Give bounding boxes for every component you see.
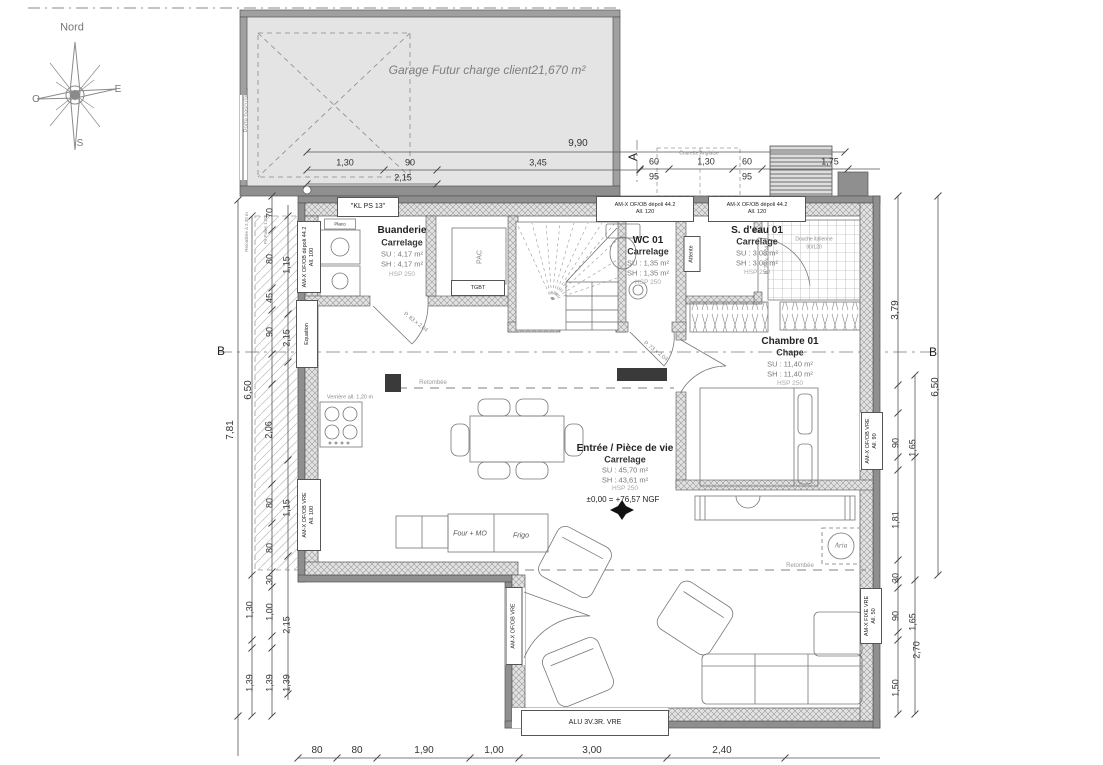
dim: 95	[742, 173, 752, 182]
room-buanderie-sh: SH : 4,17 m²	[381, 260, 423, 268]
room-wc-sh: SH : 1,35 m²	[627, 269, 669, 277]
dim: 1,50	[892, 679, 901, 697]
wall-tag-kl-ps13: "KL PS 13"	[337, 197, 399, 217]
dim: 90	[892, 438, 901, 448]
room-chambre-hsp: HSP 250	[777, 381, 803, 388]
dim: 1,30	[246, 601, 255, 619]
window-tag-bay: ALU 3V.3R. VRE	[521, 710, 669, 736]
window-tag-left-mid: AM-X OF/OB VREAll. 100	[297, 479, 321, 551]
dim: 60	[742, 158, 752, 167]
garage-structure	[240, 10, 620, 196]
strip-note-2: Px Palier 1,20	[264, 216, 269, 244]
placo-box: Placo	[324, 219, 356, 230]
room-sdeau-su: SU : 3,08 m²	[736, 249, 778, 257]
compass-west-label: O	[32, 95, 40, 105]
dim: 2,70	[913, 641, 922, 659]
door-tag-entrance: AM-X OF/OB VRE	[506, 587, 523, 665]
dim: 9,90	[568, 139, 587, 149]
dim: 1,00	[484, 746, 503, 756]
dim: 6,50	[931, 377, 941, 396]
window-tag-sdeau: AM-X OF/OB dépoli 44.2All. 120	[708, 196, 806, 222]
dim: 2,15	[283, 616, 292, 634]
dim: 1,90	[414, 746, 433, 756]
window-tag-right-top: AM-X OF/OB VREAll. 90	[861, 412, 883, 470]
dim: 95	[649, 173, 659, 182]
exterior-strip	[255, 216, 298, 570]
dim: 80	[311, 746, 322, 756]
wall-tag-equation: Equation	[296, 300, 318, 368]
oven-label: Four + MO	[453, 531, 487, 538]
dim: 1,39	[283, 674, 292, 692]
garage-title: Garage Futur charge client21,670 m²	[389, 64, 586, 76]
dim: 80	[266, 254, 275, 264]
room-chambre-name: Chambre 01	[761, 337, 818, 347]
dim: 1,65	[909, 613, 918, 631]
room-chambre-su: SU : 11,40 m²	[767, 360, 813, 368]
compass-north-label: Nord	[60, 23, 84, 34]
dim: 80	[266, 498, 275, 508]
shower-size-label: 90/120	[806, 246, 821, 251]
dim: 1,39	[266, 674, 275, 692]
dim: 30	[892, 573, 901, 583]
room-sdeau-sh: SH : 3,08 m²	[736, 259, 778, 267]
room-buanderie-su: SU : 4,17 m²	[381, 250, 423, 258]
dim: 3,79	[891, 300, 901, 319]
staircase	[516, 222, 618, 330]
room-buanderie-finish: Carrelage	[381, 239, 423, 248]
room-chambre-sh: SH : 11,40 m²	[767, 370, 813, 378]
floor-plan-page: "KL PS 13" AM-X OF/OB dépoli 44.2All. 12…	[0, 0, 1103, 765]
shower-label: Douche italienne	[795, 238, 832, 243]
dim: 2,15	[394, 174, 412, 183]
room-wc-finish: Carrelage	[627, 248, 669, 257]
fridge-label: Frigo	[513, 533, 529, 540]
stove-stamp-label: Aria	[835, 543, 847, 550]
dim: 3,00	[582, 746, 601, 756]
room-vie-name: Entrée / Pièce de vie	[577, 444, 674, 454]
tgbt-box: TGBT	[451, 280, 505, 296]
garage-door-label: Porte basculante	[244, 87, 250, 132]
dim: 80	[266, 543, 275, 553]
room-wc-su: SU : 1,35 m²	[627, 259, 669, 267]
dim: 7,81	[226, 420, 236, 439]
room-vie-sh: SH : 43,61 m²	[602, 476, 648, 484]
section-b-left: B	[217, 345, 225, 357]
window-tag-wc: AM-X OF/OB dépoli 44.2All. 120	[596, 196, 694, 222]
dim: 2,06	[265, 421, 274, 439]
attente-box: Attente	[684, 236, 701, 272]
verriere-label: Verrière all. 1,20 m	[327, 395, 373, 401]
dim: 1,65	[909, 439, 918, 457]
dim: 90	[405, 159, 415, 168]
dim: 2,40	[712, 746, 731, 756]
beam-label-1: Retombée	[419, 380, 447, 386]
room-vie-hsp: HSP 250	[612, 486, 638, 493]
room-buanderie-name: Buanderie	[378, 226, 427, 236]
dim: 90	[266, 327, 275, 337]
dim: 70	[266, 208, 275, 218]
strip-note-1: Retombée à 2,30 m	[245, 212, 250, 252]
dim: 1,15	[283, 256, 292, 274]
section-b-right: B	[929, 346, 937, 358]
dim: 1,75	[821, 158, 839, 167]
beam-label-2: Retombée	[786, 563, 814, 569]
compass-east-label: E	[115, 85, 122, 95]
window-tag-right-bottom: AM-X FIXE VREAll. 50	[860, 588, 882, 644]
dim: 1,30	[697, 158, 715, 167]
dim: 3,45	[529, 159, 547, 168]
compass-rose	[37, 42, 116, 150]
dim: 1,15	[283, 499, 292, 517]
dim: 45	[266, 293, 275, 303]
pac-label: PAC	[477, 250, 484, 264]
room-wc-name: WC 01	[633, 236, 664, 246]
room-sdeau-finish: Carrelage	[736, 238, 778, 247]
dim: 2,15	[283, 329, 292, 347]
dim: 1,81	[892, 511, 901, 529]
room-sdeau-name: S. d'eau 01	[731, 226, 783, 236]
dim: 60	[649, 158, 659, 167]
dim: 1,39	[246, 674, 255, 692]
dim: 6,50	[244, 380, 254, 399]
room-vie-su: SU : 45,70 m²	[602, 466, 648, 474]
section-a-marker: A	[627, 153, 639, 161]
door-size-sdeau: P. 73 x 2,04	[765, 246, 771, 275]
dim: 80	[351, 746, 362, 756]
room-vie-finish: Carrelage	[604, 456, 646, 465]
dim: 90	[892, 611, 901, 621]
room-buanderie-hsp: HSP 250	[389, 272, 415, 279]
dim: 30	[266, 575, 275, 585]
room-chambre-finish: Chape	[776, 349, 804, 358]
dim: 1,00	[266, 603, 275, 621]
window-tag-left-top: AM-X OF/OB dépoli 44.2All. 100	[297, 221, 321, 293]
room-vie-ngf: ±0,00 = +76,57 NGF	[587, 496, 660, 504]
compass-south-label: S	[77, 139, 84, 149]
room-wc-hsp: HSP 250	[635, 280, 661, 287]
dim: 1,30	[336, 159, 354, 168]
